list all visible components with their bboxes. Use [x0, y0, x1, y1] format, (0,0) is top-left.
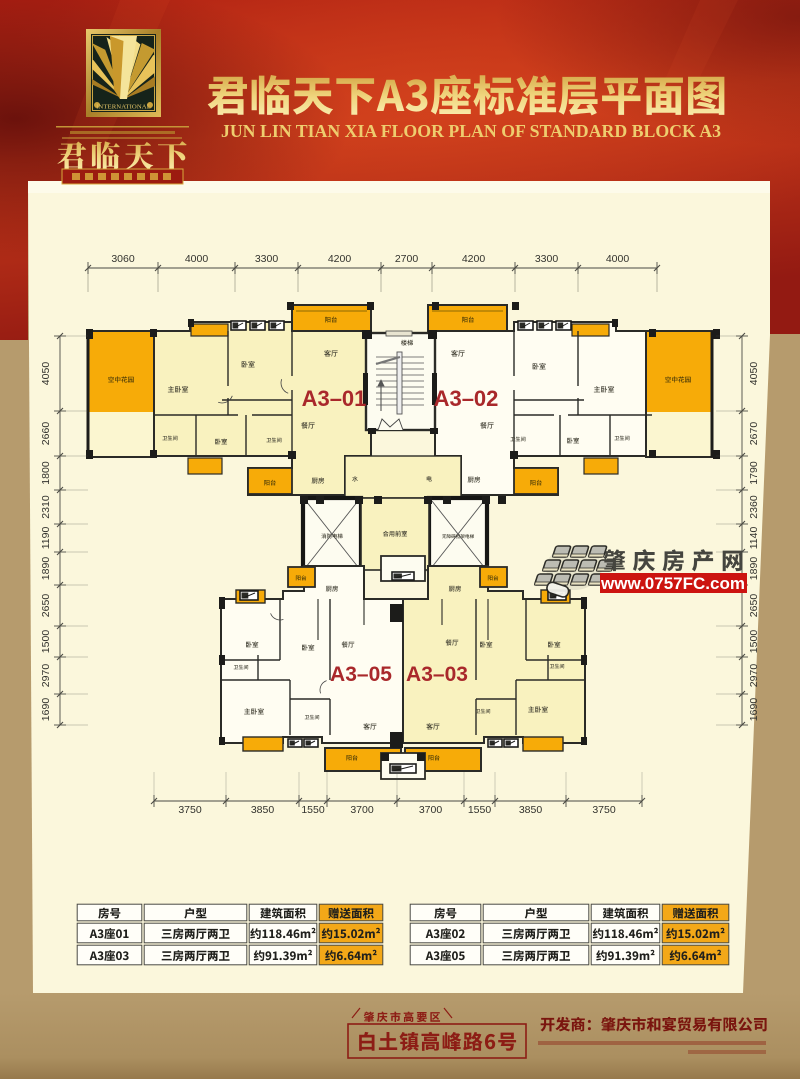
svg-text:1890: 1890: [40, 557, 52, 581]
svg-text:3850: 3850: [251, 804, 275, 816]
svg-text:4050: 4050: [748, 362, 760, 386]
svg-text:3850: 3850: [519, 804, 543, 816]
svg-text:2670: 2670: [748, 422, 760, 446]
svg-text:3300: 3300: [255, 253, 279, 265]
svg-text:1890: 1890: [748, 557, 760, 581]
svg-text:4200: 4200: [462, 253, 486, 265]
svg-text:2970: 2970: [748, 664, 760, 688]
svg-text:2970: 2970: [40, 664, 52, 688]
svg-text:3300: 3300: [535, 253, 559, 265]
svg-text:1190: 1190: [40, 527, 52, 550]
svg-text:1550: 1550: [468, 804, 492, 816]
svg-text:3060: 3060: [111, 253, 135, 265]
svg-text:A3–01: A3–01: [302, 386, 367, 411]
svg-text:4050: 4050: [40, 362, 52, 386]
svg-text:3700: 3700: [419, 804, 443, 816]
svg-text:4000: 4000: [185, 253, 209, 265]
svg-text:INTERNATIONAL: INTERNATIONAL: [96, 104, 151, 111]
svg-text:2700: 2700: [395, 253, 419, 265]
svg-text:4000: 4000: [606, 253, 630, 265]
svg-text:1140: 1140: [748, 527, 760, 550]
svg-text:2660: 2660: [40, 422, 52, 446]
svg-text:1800: 1800: [40, 461, 52, 485]
svg-text:2310: 2310: [40, 495, 52, 519]
svg-text:3750: 3750: [592, 804, 616, 816]
svg-text:A3–02: A3–02: [434, 386, 499, 411]
svg-text:JUN LIN TIAN XIA FLOOR PLAN OF: JUN LIN TIAN XIA FLOOR PLAN OF STANDARD …: [221, 121, 721, 141]
svg-text:3700: 3700: [350, 804, 374, 816]
svg-text:A3–03: A3–03: [406, 663, 468, 686]
svg-text:A3–05: A3–05: [330, 663, 392, 686]
svg-text:2360: 2360: [748, 495, 760, 519]
svg-text:3750: 3750: [178, 804, 202, 816]
svg-text:4200: 4200: [328, 253, 352, 265]
svg-text:1790: 1790: [748, 461, 760, 485]
svg-text:1550: 1550: [301, 804, 325, 816]
svg-text:1690: 1690: [40, 698, 52, 722]
svg-text:1690: 1690: [748, 698, 760, 722]
svg-text:1500: 1500: [748, 630, 760, 654]
svg-text:1500: 1500: [40, 630, 52, 654]
svg-text:2650: 2650: [40, 594, 52, 618]
svg-text:www.0757FC.com: www.0757FC.com: [600, 574, 745, 593]
svg-text:2650: 2650: [748, 594, 760, 618]
